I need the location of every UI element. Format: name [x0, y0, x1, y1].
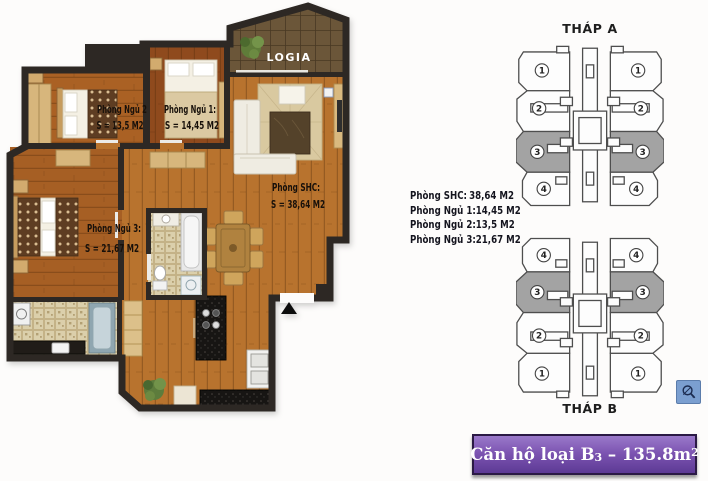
tower-a-label: THÁP A	[516, 21, 664, 36]
apartment-type-banner: Căn hộ loại B3 – 135.8m2	[472, 434, 697, 475]
area-value: 13,5 M2	[476, 218, 515, 233]
living-area: S = 38,64 M2	[271, 198, 325, 211]
area-label: Phòng Ngủ 1:	[410, 204, 476, 219]
area-row: Phòng SHC: 38,64 M2	[410, 189, 514, 204]
logia-label: LOGIA	[266, 51, 311, 64]
unit-marker: 2	[532, 329, 545, 342]
svg-text:2: 2	[638, 332, 644, 342]
area-value: 38,64 M2	[469, 189, 514, 204]
area-row: Phòng Ngủ 1: 14,45 M2	[410, 204, 514, 219]
banner-superscript: 2	[691, 446, 699, 459]
banner-prefix: Căn hộ loại B	[470, 445, 594, 464]
svg-text:2: 2	[536, 104, 542, 114]
svg-text:4: 4	[541, 185, 547, 195]
area-label: Phòng Ngủ 3:	[410, 233, 476, 248]
page: Phòng Ngủ 2 S = 13,5 M2 Phòng Ngủ 1: S =…	[0, 0, 708, 481]
unit-marker: 1	[535, 64, 548, 77]
unit-marker: 1	[631, 367, 644, 380]
bedroom1-name: Phòng Ngủ 1:	[164, 103, 216, 116]
unit-marker: 3	[636, 286, 649, 299]
area-value: 14,45 M2	[476, 204, 521, 219]
svg-text:4: 4	[633, 251, 639, 261]
svg-text:3: 3	[534, 148, 540, 158]
svg-text:3: 3	[534, 288, 540, 298]
bedroom2-area: S = 13,5 M2	[97, 119, 144, 132]
living-name: Phòng SHC:	[272, 181, 320, 194]
svg-text:4: 4	[633, 185, 639, 195]
svg-text:1: 1	[635, 370, 641, 380]
tower-b-diagram: 4 3 2 1 4 3 2 1	[516, 236, 664, 402]
unit-marker: 1	[535, 367, 548, 380]
banner-subscript: 3	[595, 451, 603, 464]
svg-text:3: 3	[640, 148, 646, 158]
magnifier-icon[interactable]	[676, 380, 701, 404]
bedroom1-area: S = 14,45 M2	[165, 119, 219, 132]
floor-plan-image: Phòng Ngủ 2 S = 13,5 M2 Phòng Ngủ 1: S =…	[0, 0, 360, 420]
tower-b-label: THÁP B	[516, 401, 664, 416]
banner-middle: – 135.8m	[602, 445, 691, 464]
tower-a-diagram: 1 2 3 4 1 2 3 4	[516, 37, 664, 213]
entry-door-gap	[280, 293, 314, 303]
area-label: Phòng Ngủ 2:	[410, 218, 476, 233]
area-row: Phòng Ngủ 3: 21,67 M2	[410, 233, 514, 248]
area-summary: Phòng SHC: 38,64 M2 Phòng Ngủ 1: 14,45 M…	[410, 189, 514, 247]
unit-marker: 1	[631, 64, 644, 77]
svg-text:1: 1	[539, 66, 545, 76]
bedroom2-name: Phòng Ngủ 2	[97, 103, 147, 116]
unit-marker: 3	[531, 286, 544, 299]
unit-marker: 4	[630, 182, 643, 195]
svg-text:2: 2	[638, 104, 644, 114]
unit-marker: 4	[537, 249, 550, 262]
unit-marker: 3	[636, 145, 649, 158]
unit-marker: 2	[532, 102, 545, 115]
bedroom3-name: Phòng Ngủ 3:	[87, 222, 141, 235]
svg-text:1: 1	[539, 370, 545, 380]
svg-text:4: 4	[541, 251, 547, 261]
svg-text:1: 1	[635, 66, 641, 76]
bedroom3-area: S = 21,67 M2	[85, 242, 139, 255]
unit-marker: 2	[634, 102, 647, 115]
entrance-arrow-icon	[281, 302, 297, 314]
area-value: 21,67 M2	[476, 233, 521, 248]
unit-marker: 3	[531, 145, 544, 158]
svg-text:2: 2	[536, 332, 542, 342]
unit-marker: 2	[634, 329, 647, 342]
unit-marker: 4	[630, 249, 643, 262]
svg-text:3: 3	[640, 288, 646, 298]
unit-marker: 4	[537, 182, 550, 195]
area-label: Phòng SHC:	[410, 189, 467, 204]
area-row: Phòng Ngủ 2: 13,5 M2	[410, 218, 514, 233]
